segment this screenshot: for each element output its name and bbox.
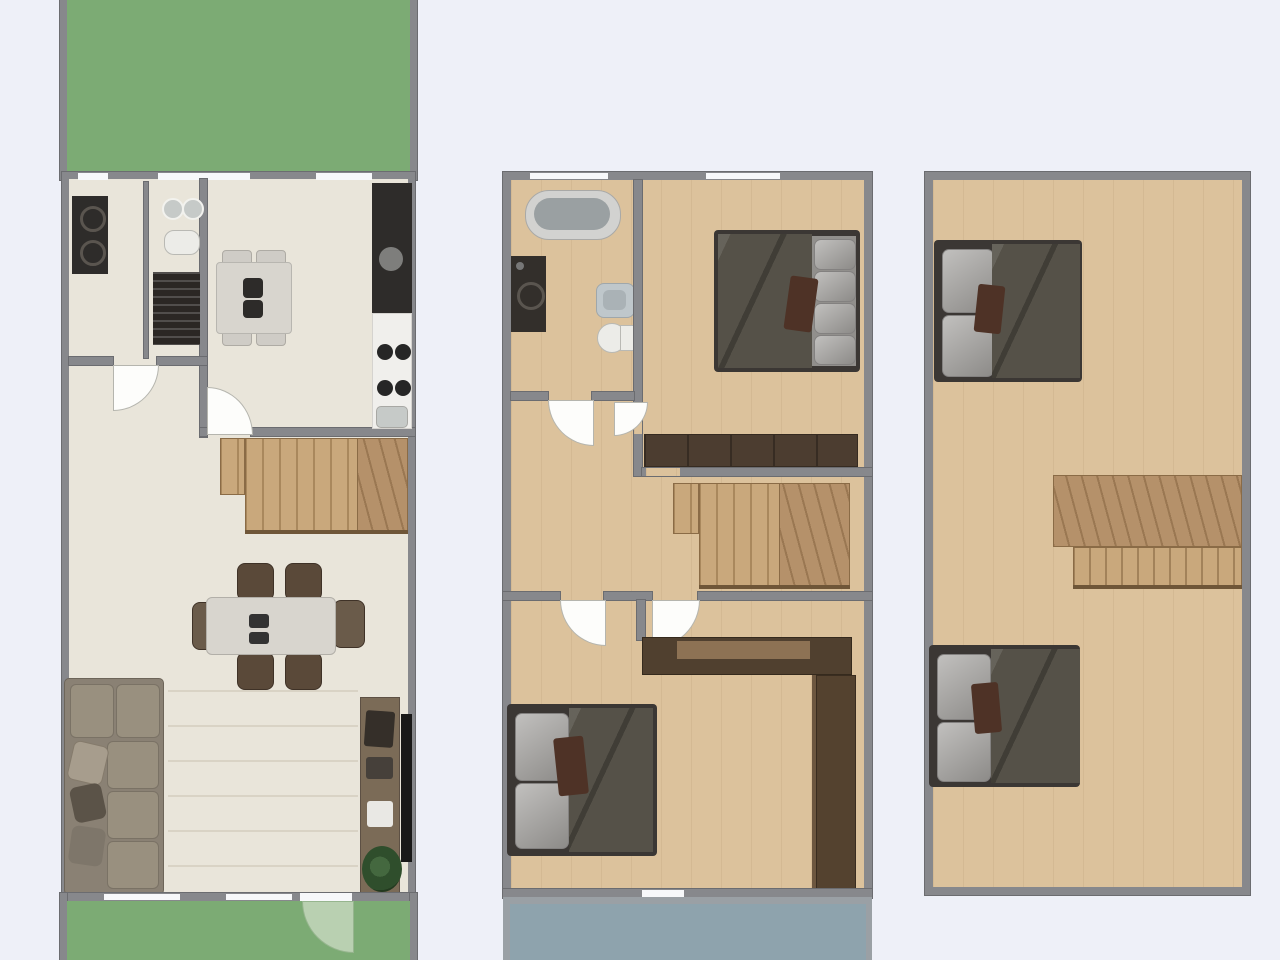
garden-door-gap [300, 893, 352, 901]
toilet [164, 230, 200, 255]
stair-void-band [642, 637, 852, 675]
dining-chair [237, 652, 274, 690]
washing-machine [511, 256, 546, 332]
stair-railing [245, 530, 408, 534]
stove-burner [377, 380, 393, 396]
cabinet-sink [379, 247, 403, 271]
first-floor-bottom-wall [503, 889, 872, 897]
corner-sofa [64, 678, 164, 895]
kitchen-bottom-wall [251, 428, 415, 436]
landing-wall-stub [637, 600, 645, 640]
washing-machine-knob [516, 262, 524, 270]
kitchen-bottom-wall-stub [200, 428, 207, 436]
balcony [510, 904, 866, 960]
stair-opening [1053, 475, 1242, 547]
bathroom-sink [596, 283, 635, 318]
console-item [367, 801, 393, 827]
potted-plant [362, 846, 402, 892]
bedroom1-wardrobe [644, 434, 858, 467]
balcony-door-gap [642, 890, 684, 897]
staircase-ground [220, 438, 245, 495]
window [706, 173, 780, 179]
sofa-cushion [116, 684, 160, 738]
dining-chair [237, 563, 274, 601]
stove-burner [395, 344, 411, 360]
sofa-pillow [69, 782, 108, 824]
utility-bottom-wall [69, 357, 113, 365]
stair-railing [699, 585, 850, 589]
sofa-cushion [107, 741, 159, 789]
kitchen-tall-cabinet [372, 183, 412, 313]
washer-dryer [72, 196, 108, 274]
console-item [366, 757, 393, 779]
bed-duvet [992, 244, 1080, 378]
garden-top [67, 0, 410, 176]
stove-burner [377, 344, 393, 360]
bed-duvet [991, 649, 1080, 783]
floorplan-canvas [0, 0, 1280, 960]
sink-round [162, 198, 184, 220]
radiator [153, 272, 200, 345]
sink-basin [603, 290, 626, 310]
table-setting [249, 614, 269, 628]
bed-pillow [814, 239, 856, 270]
counter-sink [376, 406, 408, 428]
bathtub-basin [534, 198, 610, 230]
sofa-pillow [66, 739, 110, 786]
wall-tv [401, 714, 412, 862]
bed-pillow [814, 271, 856, 302]
window [316, 173, 372, 180]
garden-wall-right [410, 0, 417, 180]
window [530, 173, 608, 179]
window [78, 173, 108, 180]
bedroom1-door-gap [646, 468, 680, 476]
bed-pillow [814, 335, 856, 365]
stair-void-inset [677, 641, 810, 659]
dining-chair [333, 600, 365, 648]
washer-drum [80, 206, 106, 232]
kitchen-table-item [243, 278, 263, 298]
sofa-cushion [70, 684, 114, 738]
console-item [364, 710, 395, 748]
stove-burner [395, 380, 411, 396]
bathroom-wall-bottom [592, 392, 634, 400]
staircase-winder [779, 483, 850, 589]
landing-wall [698, 592, 872, 600]
garden-bottom [67, 901, 410, 960]
bed-throw [974, 284, 1006, 335]
garden-wall-right [410, 893, 417, 960]
bed-throw [971, 682, 1002, 734]
bed-throw [553, 736, 589, 797]
washing-machine-drum [517, 282, 545, 310]
bed-pillow [814, 303, 856, 334]
landing-wall [503, 592, 560, 600]
stair-railing [1073, 585, 1242, 589]
bathtub [525, 190, 621, 240]
dining-table [206, 597, 336, 655]
kitchen-divider-wall [200, 179, 207, 437]
wc-divider-wall [144, 182, 148, 358]
corner-wardrobe [812, 675, 856, 890]
stair-opening-lower [1073, 547, 1242, 589]
bathroom-wall-bottom [511, 392, 548, 400]
dryer-drum [80, 240, 106, 266]
utility-bottom-wall [157, 357, 207, 365]
window [104, 894, 180, 900]
sink-round [182, 198, 204, 220]
garden-wall-left [60, 893, 67, 960]
landing-wall [604, 592, 652, 600]
dining-chair [285, 563, 322, 601]
kitchen-table-item [243, 300, 263, 318]
floor-boards [168, 690, 358, 890]
window [226, 894, 292, 900]
garden-wall-left [60, 0, 67, 180]
sofa-cushion [107, 791, 159, 839]
dining-chair [285, 652, 322, 690]
kitchen-table [216, 262, 292, 334]
sofa-pillow [68, 825, 107, 867]
staircase-first [673, 483, 699, 534]
sofa-cushion [107, 841, 159, 889]
table-setting [249, 632, 269, 644]
staircase-winder [357, 438, 408, 534]
